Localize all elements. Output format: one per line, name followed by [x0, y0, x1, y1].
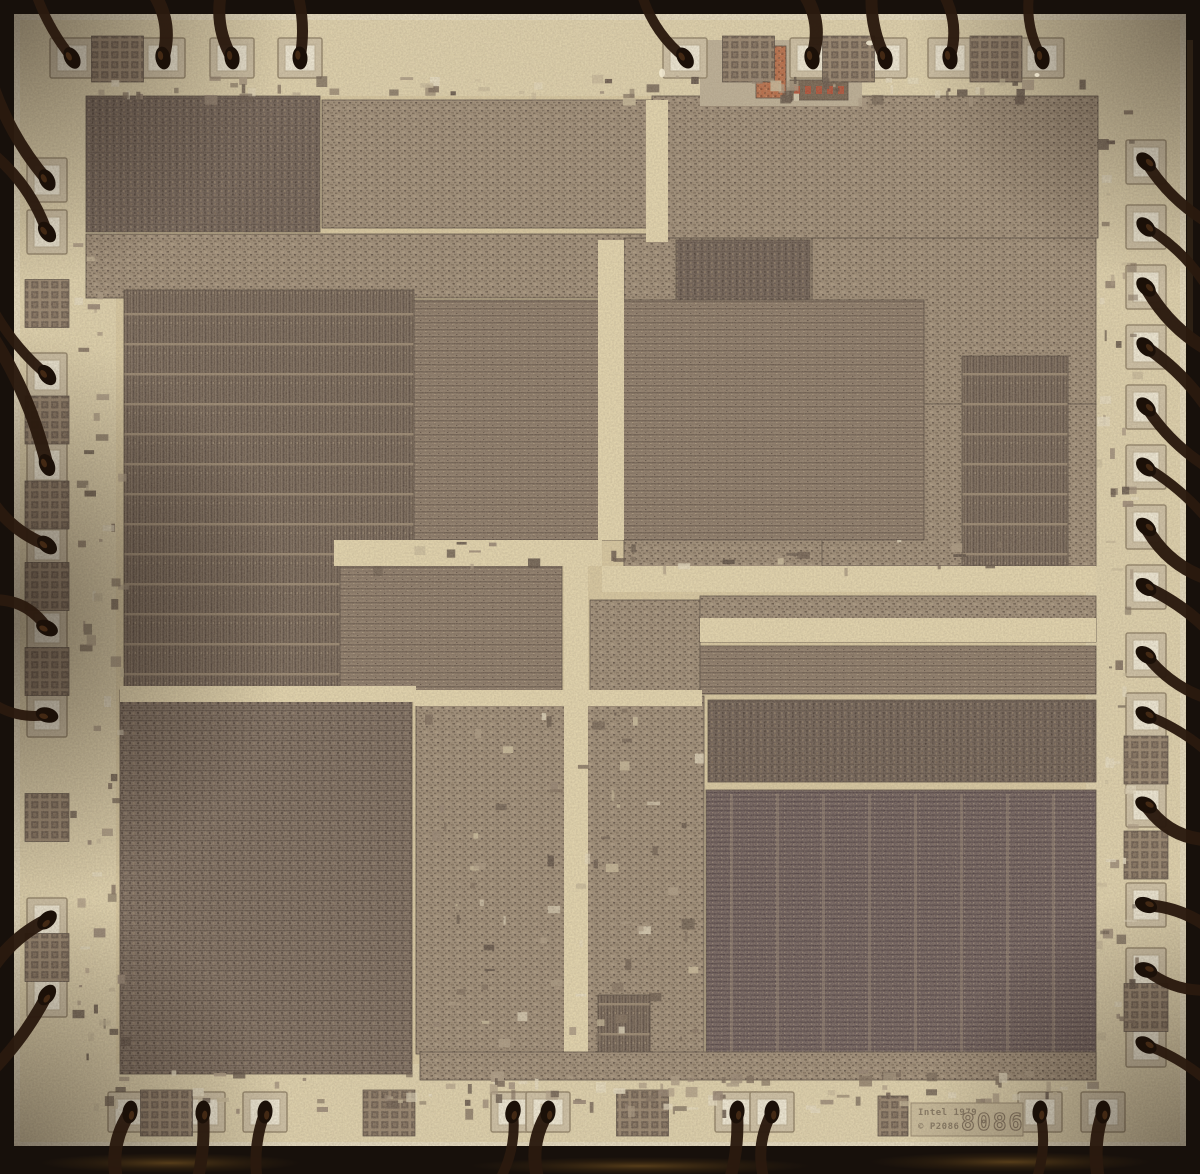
photo-grain-overlay: [0, 0, 1200, 1174]
frame-streak: [1187, 40, 1193, 340]
package-glow: [870, 1152, 1150, 1172]
die-photo-svg: Intel 1979 © P2086 8086: [0, 0, 1200, 1174]
die-photo: Intel 1979 © P2086 8086: [0, 0, 1200, 1174]
dust-speck: [1035, 73, 1040, 77]
dust-speck: [659, 69, 665, 78]
frame-edge: [0, 0, 1200, 14]
